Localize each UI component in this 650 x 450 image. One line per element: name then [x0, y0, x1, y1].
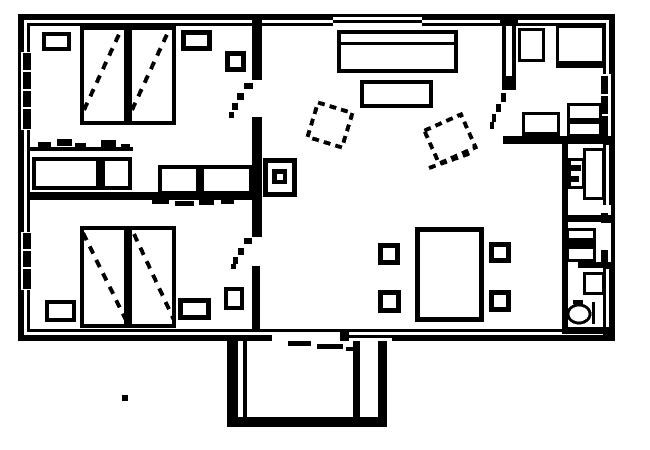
- bath-boiler-mark-1: [570, 165, 581, 171]
- nightstand-upper-right: [184, 33, 210, 49]
- nightstand-upper-left: [44, 34, 69, 49]
- window-right-bath-outer-line: [611, 205, 615, 268]
- bed-4-diagonal: [134, 234, 174, 320]
- bath-shower: [585, 150, 604, 199]
- window-top-living-punch: [333, 17, 422, 31]
- dining-chair-top-left: [381, 246, 398, 263]
- bedroom2-door-swing-dash-1: [244, 238, 252, 244]
- partition-wall-lower: [252, 266, 260, 332]
- stove-fireplace-core-hole: [277, 174, 283, 180]
- bedroom1-door-swing-dash-1: [244, 83, 253, 89]
- window-left-lower-mullion-2: [23, 251, 31, 267]
- window-left-upper-mullion-1: [23, 53, 31, 70]
- bed-3-diagonal: [83, 233, 127, 322]
- bath-vanity-band: [566, 238, 596, 249]
- kitchen-door-swing-dash-2: [496, 104, 501, 112]
- bath-divider-lower-junction: [603, 262, 615, 269]
- kitchen-door-swing-dash-4: [490, 122, 494, 129]
- bedroom2-door-swing-dash-2: [238, 248, 244, 255]
- closet-dash-3: [199, 200, 214, 205]
- toilet-tank-line: [592, 302, 595, 324]
- kitchen-wall-inner-line: [512, 24, 516, 76]
- bedroom1-door-swing-dash-4: [229, 112, 234, 118]
- closet-right: [160, 167, 251, 193]
- partition-wall-top-junction: [252, 16, 262, 24]
- closet-left: [34, 159, 130, 188]
- kitchen-bottom-wall-junction: [603, 136, 615, 145]
- bed-1-diagonal: [84, 30, 121, 110]
- closet-hanger-mark-1: [38, 142, 51, 148]
- bath-divider-upper-junction: [603, 215, 615, 223]
- bed-2-diagonal: [132, 30, 169, 110]
- porch-bottom-wall: [227, 417, 387, 427]
- dining-table: [418, 230, 482, 320]
- bedroom2-door-swing-dash-3: [233, 257, 238, 264]
- kitchen-wall-end-block: [502, 76, 516, 90]
- closet-hanger-mark-2: [57, 139, 72, 146]
- kitchen-door-swing-dash-1: [501, 93, 506, 102]
- partition-wall-upper: [252, 23, 262, 80]
- side-table-upper: [228, 54, 244, 70]
- toilet-mark: [573, 300, 583, 304]
- closet-dash-1: [152, 199, 169, 204]
- bath-boiler: [570, 160, 584, 188]
- window-left-upper-mullion-4: [23, 109, 31, 129]
- closet-hanger-mark-4: [101, 140, 116, 147]
- partition-wall-mid: [252, 117, 262, 237]
- porch-left-inner-wall: [243, 341, 247, 417]
- side-table-lower: [226, 289, 242, 308]
- kitchen-counter-front: [556, 61, 605, 68]
- window-left-lower-mullion-1: [23, 233, 31, 249]
- closet-dash-4: [221, 199, 234, 204]
- porch-door-punch: [272, 332, 340, 342]
- dining-chair-top-right: [492, 245, 509, 261]
- bath-bottom-wall-junction: [603, 327, 615, 335]
- armchair-left: [308, 103, 353, 148]
- window-right-bath-mullion-2: [601, 250, 608, 264]
- porch-door-post: [340, 329, 349, 341]
- window-left-lower-mullion-3: [23, 269, 31, 289]
- kitchen-door-swing-dash-3: [492, 114, 496, 122]
- kitchen-counter: [558, 27, 604, 67]
- floor-plan: [0, 0, 650, 450]
- kitchen-stove-front: [522, 132, 560, 138]
- kitchen-sink-divider: [567, 118, 602, 124]
- porch-door-dash-3: [346, 347, 357, 351]
- window-left-upper-mullion-2: [23, 72, 31, 89]
- kitchen-wall-outer-line: [502, 24, 506, 76]
- dining-chair-bottom-left: [381, 293, 399, 311]
- porch-right-inner-wall: [353, 341, 360, 417]
- window-top-living-line: [333, 20, 422, 23]
- bed-2: [130, 28, 174, 123]
- nightstand-lower-left: [47, 302, 74, 320]
- window-bottom-line: [348, 335, 392, 338]
- coffee-table: [362, 82, 431, 106]
- bedroom1-door-swing-dash-3: [232, 103, 238, 110]
- sofa-back-line: [341, 42, 454, 45]
- window-right-kitchen-mullion-1: [601, 76, 608, 94]
- closet-hanger-mark-3: [75, 143, 86, 149]
- bath-cabinet: [585, 274, 604, 294]
- window-left-upper-mullion-3: [23, 91, 31, 107]
- sofa: [339, 32, 456, 71]
- bath-bottom-wall: [562, 327, 606, 334]
- porch-door-dash-2: [317, 344, 343, 349]
- stray-dot: [122, 395, 128, 401]
- window-right-kitchen-outer-line: [611, 74, 615, 138]
- wall-inner-frame: [29, 25, 605, 331]
- dining-chair-bottom-right: [492, 293, 509, 310]
- nightstand-lower-right: [181, 301, 209, 318]
- floor-plan-canvas: [0, 0, 650, 450]
- kitchen-table: [520, 30, 544, 61]
- closet-hanger-mark-5: [121, 144, 130, 150]
- porch-left-outer-wall: [227, 341, 238, 427]
- porch-right-outer-wall: [378, 341, 387, 427]
- bath-boiler-mark-2: [570, 176, 579, 182]
- closet-left-divider: [96, 157, 105, 190]
- bed-1: [82, 28, 126, 123]
- kitchen-wall-top-junction: [500, 14, 518, 24]
- window-right-kitchen-mullion-3: [601, 116, 608, 136]
- bedroom2-door-swing-dash-4: [231, 264, 236, 269]
- closet-right-divider: [196, 165, 204, 195]
- closet-dash-2: [175, 201, 194, 206]
- toilet-bowl: [568, 305, 590, 323]
- bedroom1-door-swing-dash-2: [237, 93, 244, 100]
- window-right-kitchen-mullion-2: [601, 96, 608, 114]
- porch-door-dash-1: [288, 341, 311, 346]
